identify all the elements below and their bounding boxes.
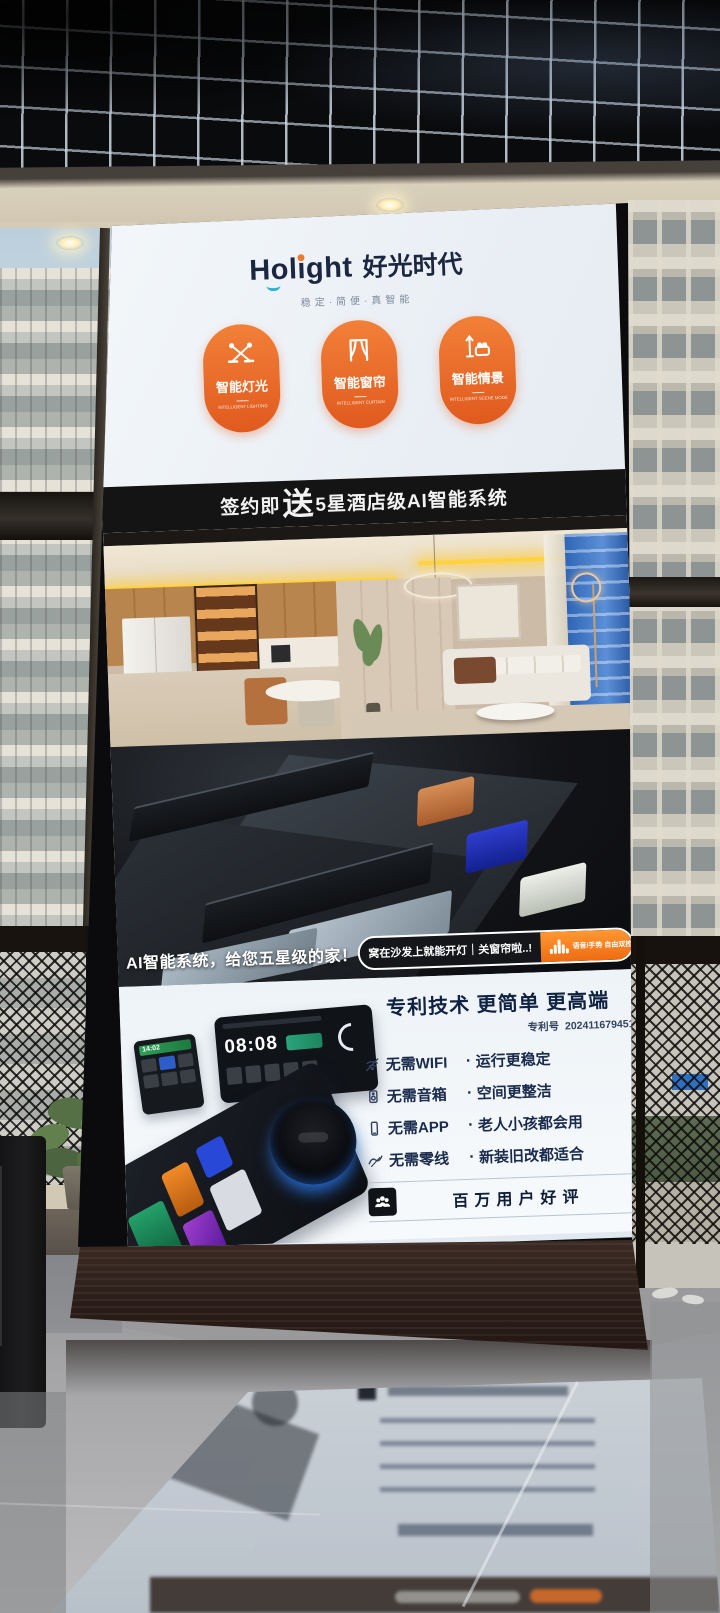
badge-smart-curtain: 智能窗帘 INTELLIGENT CURTAIN <box>320 319 400 430</box>
badge-sublabel: INTELLIGENT LIGHTING <box>218 404 267 410</box>
feature-name: 无需APP <box>388 1115 465 1139</box>
feature-row: 无需WIFI · 运行更稳定 <box>363 1045 636 1075</box>
feature-benefit: 空间更整洁 <box>476 1077 637 1104</box>
voice-tag-text: 语音/手势 自由双控 <box>572 939 632 951</box>
speech-bubble-text: 窝在沙发上就能开灯｜关窗帘啦..! <box>359 932 542 968</box>
feature-row: 无需APP · 老人小孩都会用 <box>366 1109 639 1139</box>
brand-logo-latin: Holight <box>249 251 353 288</box>
banner-suffix: 5星酒店级AI智能系统 <box>315 483 508 517</box>
reflected-feature-rows <box>380 1418 595 1510</box>
patent-number-label: 专利号 <box>527 1021 559 1034</box>
panel-main-row: 08:08 <box>223 1022 367 1062</box>
showroom-photo: Holight 好光时代 稳定·简便·真智能 智能灯光 INTELLIGENT … <box>0 0 720 1613</box>
feature-benefit: 运行更稳定 <box>475 1045 636 1072</box>
badge-sublabel: INTELLIGENT CURTAIN <box>337 400 385 406</box>
slipper <box>651 1286 678 1300</box>
ceiling-grid <box>0 0 720 186</box>
feature-name: 无需WIFI <box>385 1051 462 1075</box>
patent-info-section: 14:02 08:08 <box>119 969 652 1249</box>
badge-sublabel: INTELLIGENT SCENE MODE <box>449 396 507 402</box>
railing-post <box>636 936 645 1288</box>
feature-dot: · <box>464 1116 479 1134</box>
downlight <box>56 236 84 250</box>
switch-sample-ivory <box>520 862 587 918</box>
led-advertising-screen: Holight 好光时代 稳定·简便·真智能 智能灯光 INTELLIGENT … <box>76 198 634 1252</box>
scene-bed-lamp-icon <box>460 330 493 363</box>
ceiling-shading <box>0 0 720 186</box>
screen-content: Holight 好光时代 稳定·简便·真智能 智能灯光 INTELLIGENT … <box>92 203 652 1255</box>
patent-text-block: 专利技术 更简单 更高端 专利号 202411679451 无需WIFI · 运… <box>361 983 641 1222</box>
banner-prefix: 签约即 <box>220 491 281 520</box>
feature-name: 无需音箱 <box>386 1083 463 1107</box>
feature-dot: · <box>465 1148 480 1166</box>
no-wifi-icon <box>363 1056 381 1074</box>
no-app-icon <box>366 1120 384 1138</box>
panel-widget <box>285 1032 322 1050</box>
right-window-view <box>628 200 720 942</box>
reflected-heading <box>398 1524 593 1536</box>
living-room-photo <box>103 515 634 747</box>
reviews-row: 百万用户好评 <box>368 1173 641 1222</box>
dark-kiosk <box>0 1136 46 1428</box>
no-neutral-wire-icon <box>367 1152 385 1170</box>
window-frame-crossbar <box>628 577 720 607</box>
product-photo-section: AI智能系统，给您五星级的家！ 窝在沙发上就能开灯｜关窗帘啦..! 语音/手势 … <box>110 729 642 987</box>
right-railing <box>630 936 720 1288</box>
feature-row: 无需音箱 · 空间更整洁 <box>364 1077 637 1107</box>
feature-badges: 智能灯光 INTELLIGENT LIGHTING 智能窗帘 INTELLIGE… <box>96 303 625 477</box>
badge-divider <box>236 400 248 401</box>
patent-number-value: 202411679451 <box>565 1018 635 1032</box>
downlight <box>376 198 404 212</box>
sofa-throw <box>453 657 496 684</box>
tablet-tile <box>195 1135 234 1179</box>
users-icon <box>368 1187 397 1216</box>
reflected-speech-bubble <box>395 1591 520 1603</box>
feature-name: 无需零线 <box>389 1147 466 1171</box>
no-speaker-icon <box>365 1088 383 1106</box>
tablet-tile <box>161 1161 205 1218</box>
feature-dot: · <box>462 1084 477 1102</box>
banner-highlight: 送 <box>282 487 314 519</box>
railing-reflection <box>650 1302 720 1613</box>
reflected-text <box>388 1386 568 1396</box>
sound-wave-icon <box>550 939 569 954</box>
patent-title: 专利技术 更简单 更高端 <box>361 983 634 1021</box>
feature-benefit: 老人小孩都会用 <box>478 1109 639 1136</box>
promo-headline: AI智能系统，给您五星级的家！ <box>126 942 358 974</box>
badge-smart-lighting: 智能灯光 INTELLIGENT LIGHTING <box>202 323 282 434</box>
feature-dot: · <box>461 1052 476 1070</box>
brand-logo-chinese: 好光时代 <box>362 245 463 284</box>
badge-divider <box>472 392 484 393</box>
badge-label: 智能窗帘 <box>334 371 387 392</box>
badge-smart-scene: 智能情景 INTELLIGENT SCENE MODE <box>438 315 518 426</box>
badge-divider <box>354 396 366 397</box>
panel-clock-large: 08:08 <box>224 1032 279 1059</box>
badge-label: 智能情景 <box>451 367 504 388</box>
pendant-lights-icon <box>224 338 257 371</box>
right-building <box>628 200 720 942</box>
feature-list: 无需WIFI · 运行更稳定 无需音箱 · 空间更整洁 <box>363 1045 639 1171</box>
panel-app-grid <box>141 1053 197 1089</box>
smart-panel-small: 14:02 <box>133 1033 205 1115</box>
voice-control-segment: 语音/手势 自由双控 ☝ <box>540 928 634 962</box>
badge-label: 智能灯光 <box>216 375 269 396</box>
feature-row: 无需零线 · 新装旧改都适合 <box>367 1141 640 1171</box>
reviews-label: 百万用户好评 <box>396 1181 641 1214</box>
wall-art <box>456 583 521 641</box>
feature-benefit: 新装旧改都适合 <box>479 1141 640 1168</box>
indoor-plant <box>347 617 403 726</box>
curtain-icon <box>342 334 375 367</box>
reflected-orange-pill <box>530 1589 602 1603</box>
